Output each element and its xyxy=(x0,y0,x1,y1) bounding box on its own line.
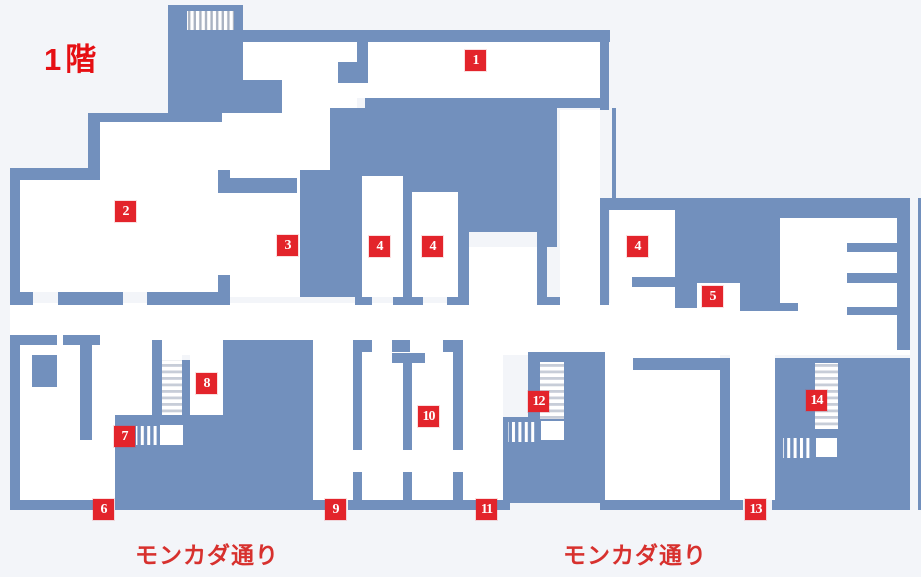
map-marker-8-label-6: 6 xyxy=(93,499,114,520)
map-marker-11-label-9: 9 xyxy=(325,499,346,520)
map-marker-6-label-4: 4 xyxy=(627,236,648,257)
street-label-left: モンカダ通り xyxy=(135,536,279,570)
map-marker-2-label-2: 2 xyxy=(115,201,136,222)
floor-plan-drawing xyxy=(0,0,921,577)
map-marker-3-label-3: 3 xyxy=(277,235,298,256)
staircase-icon-top xyxy=(187,11,234,30)
street-label-right: モンカダ通り xyxy=(563,536,707,570)
floor-plan-map: 1階 モンカダ通り モンカダ通り 123444567891011121314 xyxy=(0,0,921,577)
map-marker-14-label-12: 12 xyxy=(528,391,549,412)
map-marker-5-label-4: 4 xyxy=(422,236,443,257)
map-marker-7-label-5: 5 xyxy=(702,286,723,307)
page-title: 1階 xyxy=(44,34,100,79)
map-marker-16-label-14: 14 xyxy=(806,390,827,411)
map-marker-9-label-7: 7 xyxy=(114,426,135,447)
map-marker-4-label-4: 4 xyxy=(369,236,390,257)
staircase-icon-8 xyxy=(162,345,182,415)
map-marker-13-label-11: 11 xyxy=(476,499,497,520)
map-marker-1-label-1: 1 xyxy=(465,50,486,71)
map-marker-12-label-10: 10 xyxy=(418,406,439,427)
map-marker-10-label-8: 8 xyxy=(196,373,217,394)
map-marker-15-label-13: 13 xyxy=(745,499,766,520)
